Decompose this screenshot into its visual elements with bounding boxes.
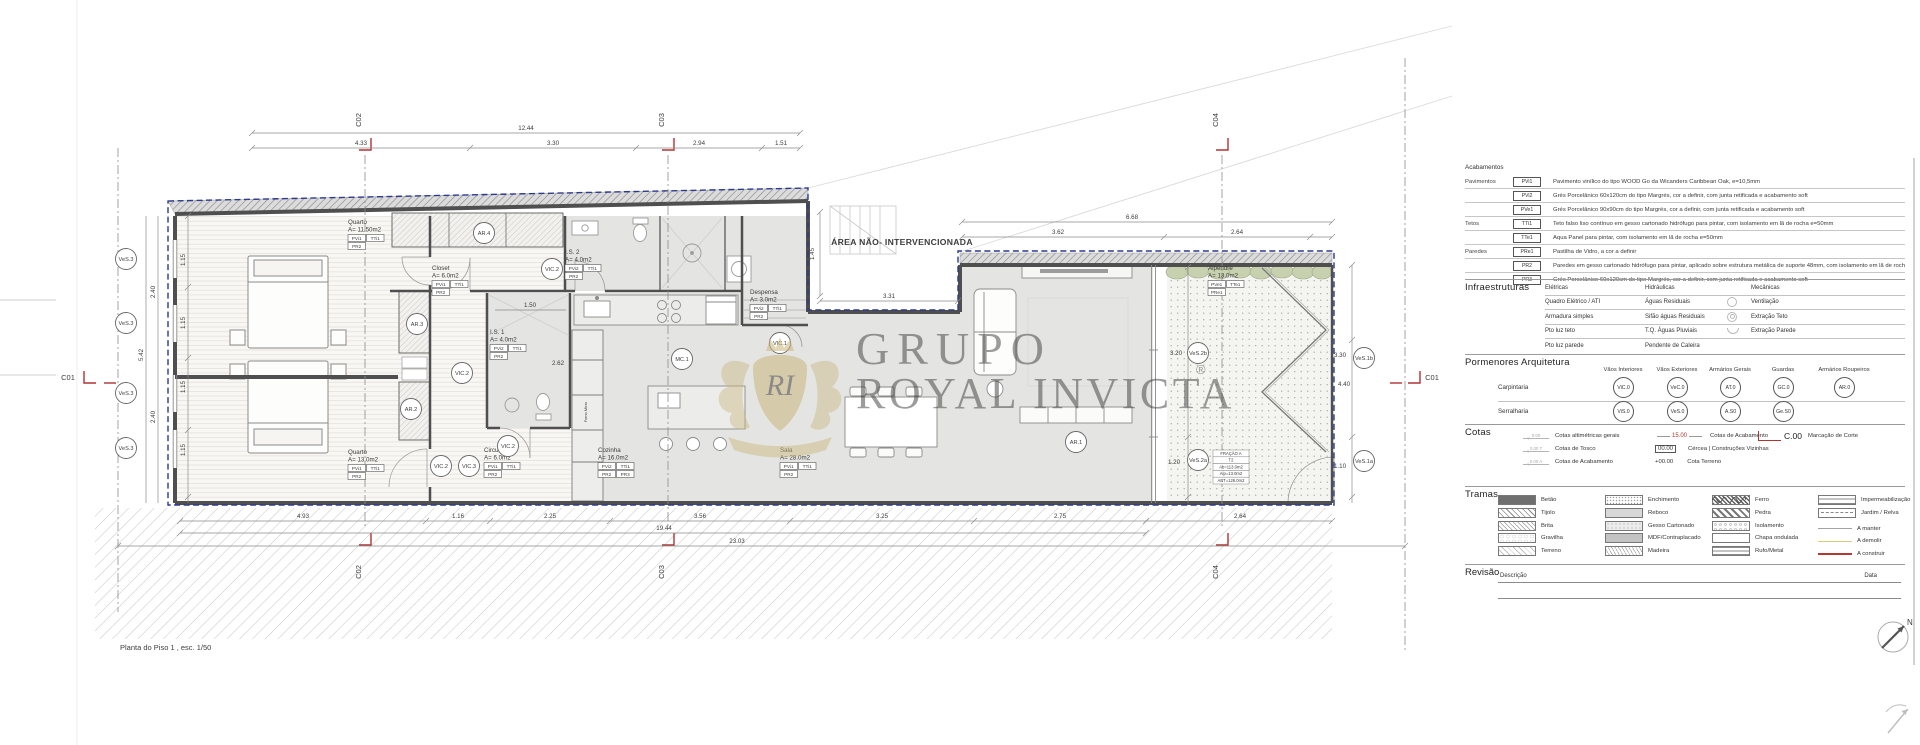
infra-row: Pto luz parede Pendente de Caleira (1545, 338, 1905, 353)
svg-text:2.94: 2.94 (693, 140, 706, 147)
revisao-descricao: Descrição (1500, 573, 1527, 579)
svg-text:TTi1: TTi1 (371, 466, 381, 471)
section-label-c03: C03 (657, 113, 666, 127)
svg-text:Cozinha: Cozinha (598, 447, 621, 454)
svg-text:PVi1: PVi1 (488, 464, 498, 469)
svg-text:PVi2: PVi2 (754, 306, 764, 311)
svg-text:TTi1: TTi1 (455, 282, 465, 287)
legend-panel: Acabamentos PavimentosPVi1Pavimento viní… (1465, 160, 1915, 720)
svg-text:A= 4.0m2: A= 4.0m2 (490, 337, 517, 344)
finish-tag: PR2 (1513, 261, 1541, 271)
hatch-madeira-icon (1605, 546, 1643, 556)
acabamentos-title: Acabamentos (1465, 164, 1905, 171)
svg-text:1.10: 1.10 (1334, 463, 1347, 470)
svg-text:1.20: 1.20 (1168, 459, 1181, 466)
pormenores-section: Pormenores Arquitetura Vãos Interiores V… (1465, 354, 1905, 425)
hatch-betao-icon (1498, 495, 1536, 505)
svg-text:TTi1: TTi1 (621, 464, 631, 469)
detail-tag: A.S0 (1720, 401, 1741, 422)
cota-value: 15.00 (1672, 433, 1687, 439)
col-header: Mecânicas (1751, 285, 1905, 291)
infraestruturas-title: Infraestruturas (1465, 282, 1529, 293)
acabamento-row: PR2Paredes em gesso cartonado hidrófugo … (1465, 258, 1905, 272)
hatch-pedra-icon (1712, 508, 1750, 518)
finish-desc: Teto falso liso contínuo em gesso carton… (1553, 221, 1905, 227)
double-circle-symbol-icon (1727, 312, 1737, 322)
hatch-label: Tijolo (1541, 510, 1555, 516)
finish-desc: Pavimento vinílico do tipo WOOD Go da Wi… (1553, 179, 1905, 185)
svg-text:A= 4.0m2: A= 4.0m2 (565, 257, 592, 264)
hatch-label: Madeira (1648, 548, 1669, 554)
row-label: Carpintaria (1498, 384, 1528, 391)
svg-text:3.30: 3.30 (1334, 352, 1347, 359)
watermark-reg: ® (1196, 362, 1206, 377)
acabamento-row: PVe1Grés Porcelânico 90x90cm do tipo Mar… (1465, 202, 1905, 216)
svg-text:TTi1: TTi1 (371, 236, 381, 241)
tramas-title: Tramas (1465, 489, 1498, 500)
section-label-c04: C04 (1211, 113, 1220, 127)
line-label: A manter (1857, 526, 1881, 532)
detail-tag: AR.0 (1834, 377, 1855, 398)
half-circle-symbol-icon (1727, 328, 1739, 334)
section-label-c03: C03 (657, 565, 666, 579)
finish-tag: PRe1 (1513, 247, 1541, 257)
hatch-label: MDF/Contraplacado (1648, 535, 1701, 541)
svg-text:1.15: 1.15 (180, 253, 187, 266)
infra-row: Quadro Elétrico / ATI Águas Residuais Ve… (1545, 295, 1905, 310)
svg-text:Quarto: Quarto (348, 449, 367, 456)
area-nao-intervencionada-label: ÁREA NÃO- INTERVENCIONADA (831, 237, 973, 247)
svg-text:Closet: Closet (432, 265, 450, 272)
finish-desc: Grés Porcelânico 60x120cm do tipo Margré… (1553, 193, 1905, 199)
hatch-label: Pedra (1755, 510, 1771, 516)
infra-item: Armadura simples (1545, 314, 1645, 320)
revisao-rule (1498, 582, 1901, 583)
detail-tag: AT.0 (1720, 377, 1741, 398)
svg-text:PRe1: PRe1 (1211, 290, 1223, 295)
svg-text:2.62: 2.62 (552, 360, 565, 367)
hatch-label: Betão (1541, 497, 1556, 503)
infra-item: Pto luz parede (1545, 343, 1645, 349)
acabamento-row: TetosTTi1Teto falso liso contínuo em ges… (1465, 216, 1905, 230)
svg-text:PR2: PR2 (488, 472, 498, 477)
svg-text:TTi1: TTi1 (773, 306, 783, 311)
drawing-sheet: { "colors": { "boundary_blue": "#2b3a8c"… (0, 0, 1920, 745)
line-a-demolir-icon (1818, 541, 1852, 543)
bubble-label: VeS.1b (1355, 356, 1373, 362)
svg-text:Ab=113.0m2: Ab=113.0m2 (1219, 464, 1243, 469)
detail-tag: ViS.0 (1613, 401, 1634, 422)
bubble-label: MC.1 (675, 357, 688, 363)
section-label-c02: C02 (354, 113, 363, 127)
line-label: A demolir (1857, 538, 1882, 544)
infra-item: Ventilação (1751, 299, 1905, 305)
detail-tag: Ge.S0 (1773, 401, 1794, 422)
svg-text:PVi2: PVi2 (494, 346, 504, 351)
svg-text:PR2: PR2 (569, 274, 579, 279)
hatch-brita-icon (1498, 521, 1536, 531)
col-header: Armários Gerais (1709, 367, 1751, 373)
svg-text:Despensa: Despensa (750, 289, 778, 296)
infra-row: Armadura simples Sifão águas Residuais E… (1545, 309, 1905, 324)
finish-tag: PVe1 (1513, 205, 1541, 215)
cota-label: Cércea | Construções Vizinhas (1688, 446, 1769, 452)
hatch-label: Jardim / Relva (1861, 510, 1899, 516)
bubble-label: VIC.2 (501, 444, 515, 450)
col-header: Hidráulicas (1645, 285, 1727, 291)
svg-text:ABT=126.0m2: ABT=126.0m2 (1218, 478, 1246, 483)
svg-text:2.75: 2.75 (1054, 513, 1067, 520)
line-label: A construir (1857, 551, 1885, 557)
svg-text:I.S. 1: I.S. 1 (490, 329, 505, 336)
corte-label: Marcação de Corte (1808, 433, 1858, 439)
bubble-label: AR.2 (405, 407, 417, 413)
revisao-data: Data (1864, 573, 1877, 579)
svg-text:PVe1: PVe1 (1211, 282, 1223, 287)
finish-tag: PVi2 (1513, 191, 1541, 201)
svg-text:PVi1: PVi1 (784, 464, 794, 469)
col-header: Vãos Interiores (1604, 367, 1643, 373)
svg-text:2.64: 2.64 (1231, 229, 1244, 236)
svg-text:3.25: 3.25 (876, 513, 889, 520)
col-header: Elétricas (1545, 285, 1645, 291)
svg-text:3.62: 3.62 (1052, 229, 1065, 236)
svg-text:T2: T2 (1229, 458, 1235, 463)
bubble-label: VIC.2 (434, 464, 448, 470)
svg-text:PR2: PR2 (602, 472, 612, 477)
hatch-label: Ferro (1755, 497, 1769, 503)
svg-text:23.03: 23.03 (729, 538, 745, 545)
detail-tag: ViC.0 (1613, 377, 1634, 398)
terrain-hatch (95, 508, 1332, 639)
cota-label: Cota Terreno (1687, 459, 1721, 465)
hatch-label: Enchimento (1648, 497, 1679, 503)
section-label-c01: C01 (61, 373, 75, 382)
svg-text:TTi1: TTi1 (507, 464, 517, 469)
svg-text:TTi1: TTi1 (803, 464, 813, 469)
svg-text:TTi1: TTi1 (513, 346, 523, 351)
finish-tag: TTe1 (1513, 233, 1541, 243)
svg-text:A= 6.0m2: A= 6.0m2 (432, 273, 459, 280)
hatch-jardim-icon (1818, 508, 1856, 518)
infra-item: Águas Residuais (1645, 299, 1727, 305)
svg-text:Alp=13.0m2: Alp=13.0m2 (1220, 471, 1243, 476)
finish-desc: Grés Porcelânico 90x90cm do tipo Margrés… (1553, 207, 1905, 213)
finish-desc: Aqua Panel para pintar, com isolamento e… (1553, 235, 1905, 241)
hatch-tijolo-icon (1498, 508, 1536, 518)
finish-desc: Pastilha de Vidro, a cor a definir (1553, 249, 1905, 255)
col-header: Guardas (1772, 367, 1794, 373)
svg-text:A= 3.0m2: A= 3.0m2 (750, 297, 777, 304)
svg-text:A= 16.0m2: A= 16.0m2 (598, 455, 629, 462)
hatch-rufo-icon (1712, 546, 1750, 556)
svg-text:1.15: 1.15 (180, 380, 187, 393)
group-label: Pavimentos (1465, 179, 1513, 185)
tramas-section: Tramas Betão Tijolo Brita Gravilha Terre… (1465, 486, 1905, 567)
plan-caption: Planta do Piso 1 , esc. 1/50 (120, 643, 211, 652)
group-label: Tetos (1465, 221, 1513, 227)
section-label-c04: C04 (1211, 565, 1220, 579)
acabamento-row: PVi2Grés Porcelânico 60x120cm do tipo Ma… (1465, 188, 1905, 202)
bubble-label: VeS.3 (119, 257, 134, 263)
svg-text:A= 13.0m2: A= 13.0m2 (1208, 273, 1239, 280)
infra-item: Pto luz teto (1545, 328, 1645, 334)
svg-text:3.56: 3.56 (694, 513, 707, 520)
hatch-label: Brita (1541, 523, 1553, 529)
watermark-word1: GRUPO (856, 323, 1052, 374)
acabamento-row: TTe1Aqua Panel para pintar, com isolamen… (1465, 230, 1905, 244)
cotas-section: Cotas ▿0.00Cotas altimétricas gerais ▿0.… (1465, 424, 1905, 487)
svg-text:PR2: PR2 (352, 244, 362, 249)
svg-text:PR2: PR2 (494, 354, 504, 359)
bubble-label: VeS.2a (1189, 458, 1208, 464)
cota-value: +00.00 (1655, 459, 1673, 465)
svg-text:12.44: 12.44 (518, 125, 534, 132)
svg-text:2.40: 2.40 (150, 410, 157, 423)
level-marker-icon: ▿0.00 (1523, 433, 1549, 439)
svg-text:A= 11.50m2: A= 11.50m2 (348, 227, 382, 234)
col-header: Vãos Exteriores (1657, 367, 1698, 373)
bubble-label: VeS.3 (119, 446, 134, 452)
hatch-chapa-icon (1712, 533, 1750, 543)
bubble-label: VIC.2 (545, 267, 559, 273)
svg-text:1.15: 1.15 (180, 316, 187, 329)
svg-text:2.64: 2.64 (1234, 513, 1247, 520)
svg-text:RI: RI (765, 369, 796, 402)
svg-text:3.20: 3.20 (1170, 350, 1183, 357)
hatch-reboco-icon (1605, 508, 1643, 518)
section-label-c01: C01 (1425, 373, 1439, 382)
svg-text:PR2: PR2 (784, 472, 794, 477)
line-a-manter-icon (1818, 528, 1852, 530)
hatch-label: Reboco (1648, 510, 1668, 516)
hatch-isolamento-icon (1712, 521, 1750, 531)
svg-text:PR2: PR2 (754, 314, 764, 319)
acabamentos-section: Acabamentos PavimentosPVi1Pavimento viní… (1465, 164, 1905, 286)
hatch-label: Chapa ondulada (1755, 535, 1798, 541)
revisao-title: Revisão (1465, 567, 1499, 578)
svg-text:4.33: 4.33 (355, 140, 368, 147)
dim-line-icon (1689, 436, 1702, 437)
bubble-label: AR.3 (411, 322, 423, 328)
svg-text:I.S. 2: I.S. 2 (565, 249, 580, 256)
svg-text:Quarto: Quarto (348, 219, 367, 226)
infra-item: Pendente de Caleira (1645, 343, 1727, 349)
bubble-label: VeS.3 (119, 321, 134, 327)
svg-text:19.44: 19.44 (656, 525, 672, 532)
svg-text:6.68: 6.68 (1126, 214, 1139, 221)
infra-item: Extração Parede (1751, 328, 1905, 334)
cota-label: Cotas de Tosco (1555, 446, 1596, 452)
svg-text:4.93: 4.93 (297, 513, 310, 520)
cota-value: 00.00 (1655, 445, 1676, 453)
infra-item: Quadro Elétrico / ATI (1545, 299, 1645, 305)
svg-text:1.51: 1.51 (775, 140, 788, 147)
fracao-table: FRAÇÃO A T2 Ab=113.0m2 Alp=13.0m2 ABT=12… (1213, 450, 1249, 484)
line-a-construir-icon (1818, 553, 1852, 555)
svg-text:PVi1: PVi1 (436, 282, 446, 287)
section-cut-icon (1758, 431, 1781, 441)
row-label: Serralharia (1498, 408, 1528, 415)
cota-label: Cotas de Acabamento (1555, 459, 1613, 465)
svg-text:1.15: 1.15 (180, 443, 187, 456)
dim-line-icon (1657, 436, 1670, 437)
infra-item: Sifão águas Residuais (1645, 314, 1727, 320)
svg-text:1.50: 1.50 (524, 302, 537, 309)
infra-item: Extração Teto (1751, 314, 1905, 320)
hatch-label: Gesso Cartonado (1648, 523, 1694, 529)
svg-text:TTe1: TTe1 (1230, 282, 1241, 287)
finish-desc: Paredes em gesso cartonado hidrófugo par… (1553, 263, 1905, 269)
hatch-gravilha-icon (1498, 533, 1536, 543)
bubble-label: AR.4 (478, 231, 490, 237)
detail-tag: VeS.0 (1667, 401, 1688, 422)
forno-label: Forno Micro (584, 402, 588, 422)
svg-text:FRAÇÃO A: FRAÇÃO A (1220, 451, 1241, 456)
infra-row: Pto luz teto T.Q. Águas Pluviais Extraçã… (1545, 324, 1905, 339)
svg-text:2.40: 2.40 (150, 285, 157, 298)
finish-tag: PVi1 (1513, 177, 1541, 187)
hatch-label: Rufo/Metal (1755, 548, 1783, 554)
svg-text:PVi2: PVi2 (602, 464, 612, 469)
group-label: Paredes (1465, 249, 1513, 255)
svg-text:3.31: 3.31 (883, 293, 896, 300)
pormenores-title: Pormenores Arquitetura (1465, 357, 1570, 368)
bubble-label: VeS.3 (119, 391, 134, 397)
cota-label: Cotas altimétricas gerais (1555, 433, 1620, 439)
svg-text:1.45: 1.45 (809, 247, 816, 260)
hatch-terreno-icon (1498, 546, 1536, 556)
svg-text:4.40: 4.40 (1338, 381, 1351, 388)
section-label-c02: C02 (354, 565, 363, 579)
bubble-label: VIC.3 (462, 464, 476, 470)
level-marker-icon: ▿0.00 T (1523, 446, 1549, 452)
svg-text:PVi1: PVi1 (352, 466, 362, 471)
svg-text:3.30: 3.30 (547, 140, 560, 147)
svg-text:Alpendre: Alpendre (1208, 265, 1233, 272)
hatch-label: Isolamento (1755, 523, 1784, 529)
svg-text:2.25: 2.25 (544, 513, 557, 520)
svg-text:PR2: PR2 (352, 474, 362, 479)
detail-tag: GC.0 (1773, 377, 1794, 398)
infra-header-row: Elétricas Hidráulicas Mecânicas (1545, 281, 1905, 295)
bubble-label: VeS.2b (1189, 351, 1207, 357)
svg-text:1.16: 1.16 (452, 513, 465, 520)
hatch-label: Impermeabilização (1861, 497, 1910, 503)
hatch-mdf-icon (1605, 533, 1643, 543)
bubble-label: VIC.2 (455, 371, 469, 377)
detail-tag: VeC.0 (1667, 377, 1688, 398)
svg-text:5.42: 5.42 (138, 348, 145, 361)
svg-text:PR2: PR2 (436, 290, 446, 295)
revisao-section: Revisão Descrição Data (1465, 564, 1905, 611)
hatch-label: Gravilha (1541, 535, 1563, 541)
acabamento-row: ParedesPRe1Pastilha de Vidro, a cor a de… (1465, 244, 1905, 258)
infra-item: T.Q. Águas Pluviais (1645, 328, 1727, 334)
revisao-rule (1498, 598, 1901, 599)
circle-symbol-icon (1727, 297, 1737, 307)
watermark-word2: ROYAL INVICTA (856, 369, 1235, 418)
infraestruturas-section: Infraestruturas Elétricas Hidráulicas Me… (1465, 279, 1905, 353)
hatch-label: Terreno (1541, 548, 1561, 554)
level-marker-icon: ▿0.00 A (1523, 459, 1549, 465)
svg-text:TTi1: TTi1 (588, 266, 598, 271)
hatch-impermeabilizacao-icon (1818, 495, 1856, 505)
acabamento-row: PavimentosPVi1Pavimento vinílico do tipo… (1465, 175, 1905, 188)
hatch-enchimento-icon (1605, 495, 1643, 505)
corte-value: C.00 (1784, 431, 1802, 441)
bubble-label: AR.1 (1070, 440, 1082, 446)
col-header: Armários Roupeiros (1818, 367, 1869, 373)
svg-text:A= 13.0m2: A= 13.0m2 (348, 457, 379, 464)
kitchen-counter (574, 295, 738, 325)
hatch-gesso-icon (1605, 521, 1643, 531)
svg-text:PVi1: PVi1 (352, 236, 362, 241)
finish-tag: TTi1 (1513, 219, 1541, 229)
svg-text:PVi2: PVi2 (569, 266, 579, 271)
svg-text:PR3: PR3 (621, 472, 631, 477)
bubble-label: VeS.1a (1355, 459, 1374, 465)
